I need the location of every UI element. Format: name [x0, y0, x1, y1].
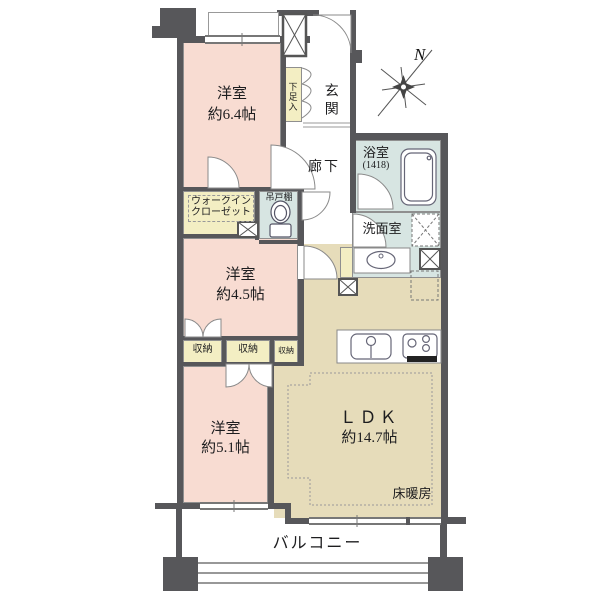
- bedroom3-name: 洋室: [183, 422, 268, 438]
- bathtub-icon: [401, 149, 436, 205]
- bedroom1-name: 洋室: [183, 87, 281, 103]
- ldk-size: 約14.7帖: [307, 431, 432, 447]
- wic-door-arc: [208, 157, 239, 188]
- washing-machine-space: [412, 214, 439, 246]
- storage3-label: 収納: [274, 347, 298, 355]
- toilet-icon: [270, 201, 291, 237]
- bedroom2-size: 約4.5帖: [183, 288, 298, 304]
- wic-label-line2: クローゼット: [189, 208, 253, 219]
- shoe-box-label: 下足入: [287, 74, 296, 120]
- refrigerator-space: [411, 271, 438, 300]
- washroom-label: 洗面室: [355, 222, 409, 236]
- grill-icon: [407, 356, 437, 362]
- bedroom3-size: 約5.1帖: [183, 441, 268, 457]
- storage2-label: 収納: [226, 345, 270, 356]
- bathroom-label: 浴室: [356, 146, 396, 160]
- bathroom-door-arc: [358, 174, 393, 209]
- shoe-cabinet-doors: [302, 68, 311, 118]
- closet-door-arc: [203, 319, 221, 337]
- closet-door-arc: [226, 364, 249, 387]
- hanging-shelf-label: 吊戸棚: [260, 193, 298, 202]
- ldk-door-arc: [304, 246, 337, 279]
- toilet-door-arc: [302, 192, 330, 220]
- entrance-label: 玄関: [322, 70, 337, 132]
- fixtures-overlay: N: [0, 0, 600, 600]
- balcony-railing: [198, 563, 428, 583]
- ldk-name: ＬＤＫ: [307, 409, 432, 427]
- floor-heating-label: 床暖房: [385, 487, 439, 501]
- bathroom-size-code: (1418): [354, 161, 398, 172]
- compass: N: [378, 45, 432, 116]
- entrance-door-arc: [313, 15, 351, 53]
- kitchen-counter: [337, 330, 441, 363]
- storage1-label: 収納: [183, 345, 222, 356]
- wic-label-box: ウォークイン クローゼット: [188, 195, 254, 222]
- stove-icon: [403, 334, 437, 358]
- washbasin-icon: [354, 248, 410, 273]
- closet-door-arc: [185, 319, 203, 337]
- hallway-label: 廊下: [303, 161, 345, 176]
- bedroom1-size: 約6.4帖: [183, 108, 281, 124]
- compass-north-label: N: [413, 45, 427, 64]
- bedroom2-name: 洋室: [183, 268, 298, 284]
- wic-label-line1: ウォークイン: [189, 197, 253, 208]
- floor-plan: N 洋室 約6.4帖 洋室 約4.5帖 洋室 約5.1帖 ＬＤＫ 約14.7帖 …: [0, 0, 600, 600]
- balcony-label: バルコニー: [245, 536, 390, 553]
- closet-door-arc: [249, 364, 272, 387]
